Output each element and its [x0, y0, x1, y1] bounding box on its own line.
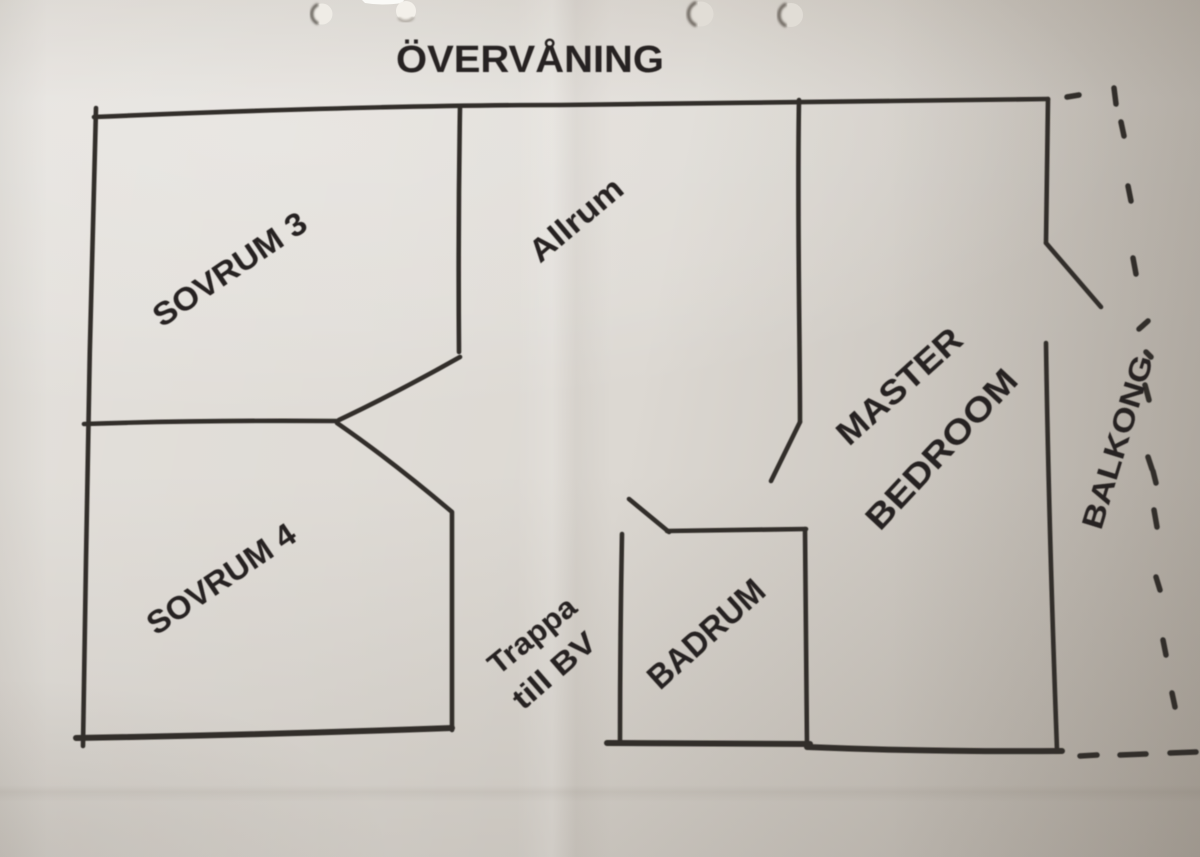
svg-text:BALKONG: BALKONG: [1076, 351, 1160, 533]
svg-text:SOVRUM 3: SOVRUM 3: [146, 204, 314, 333]
svg-text:SOVRUM 4: SOVRUM 4: [140, 516, 303, 642]
svg-text:BADRUM: BADRUM: [640, 572, 773, 697]
svg-text:Allrum: Allrum: [521, 170, 630, 270]
svg-text:ÖVERVÅNING: ÖVERVÅNING: [396, 37, 664, 81]
